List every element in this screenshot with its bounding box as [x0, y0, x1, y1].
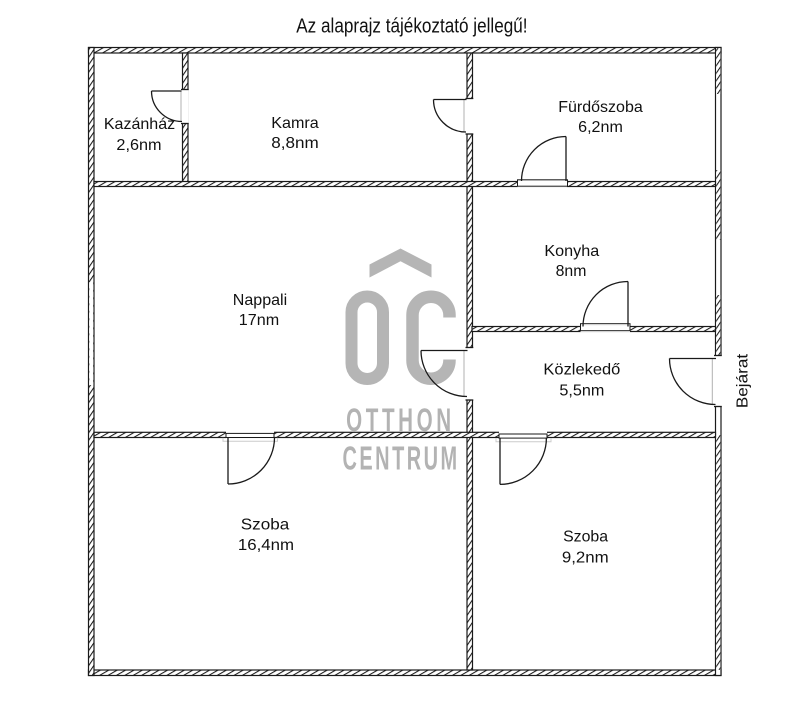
svg-text:16,4nm: 16,4nm: [238, 537, 294, 554]
svg-text:Az alaprajz tájékoztató jelleg: Az alaprajz tájékoztató jellegű!: [296, 14, 527, 37]
svg-text:8nm: 8nm: [556, 263, 587, 280]
svg-text:Kazánház: Kazánház: [104, 116, 175, 133]
svg-text:Kamra: Kamra: [271, 115, 319, 132]
svg-text:Fürdőszoba: Fürdőszoba: [558, 99, 643, 116]
svg-text:6,2nm: 6,2nm: [578, 119, 623, 136]
svg-text:2,6nm: 2,6nm: [116, 137, 161, 154]
svg-text:CENTRUM: CENTRUM: [342, 439, 459, 477]
svg-text:Szoba: Szoba: [563, 528, 608, 545]
svg-text:Konyha: Konyha: [544, 243, 599, 260]
svg-text:Szoba: Szoba: [241, 517, 290, 534]
svg-text:Nappali: Nappali: [233, 292, 287, 309]
svg-text:Bejárat: Bejárat: [735, 353, 752, 408]
svg-text:17nm: 17nm: [239, 312, 279, 329]
svg-text:5,5nm: 5,5nm: [559, 382, 604, 399]
svg-text:8,8nm: 8,8nm: [271, 135, 319, 152]
svg-text:9,2nm: 9,2nm: [562, 550, 609, 567]
svg-text:Közlekedő: Közlekedő: [543, 362, 620, 379]
